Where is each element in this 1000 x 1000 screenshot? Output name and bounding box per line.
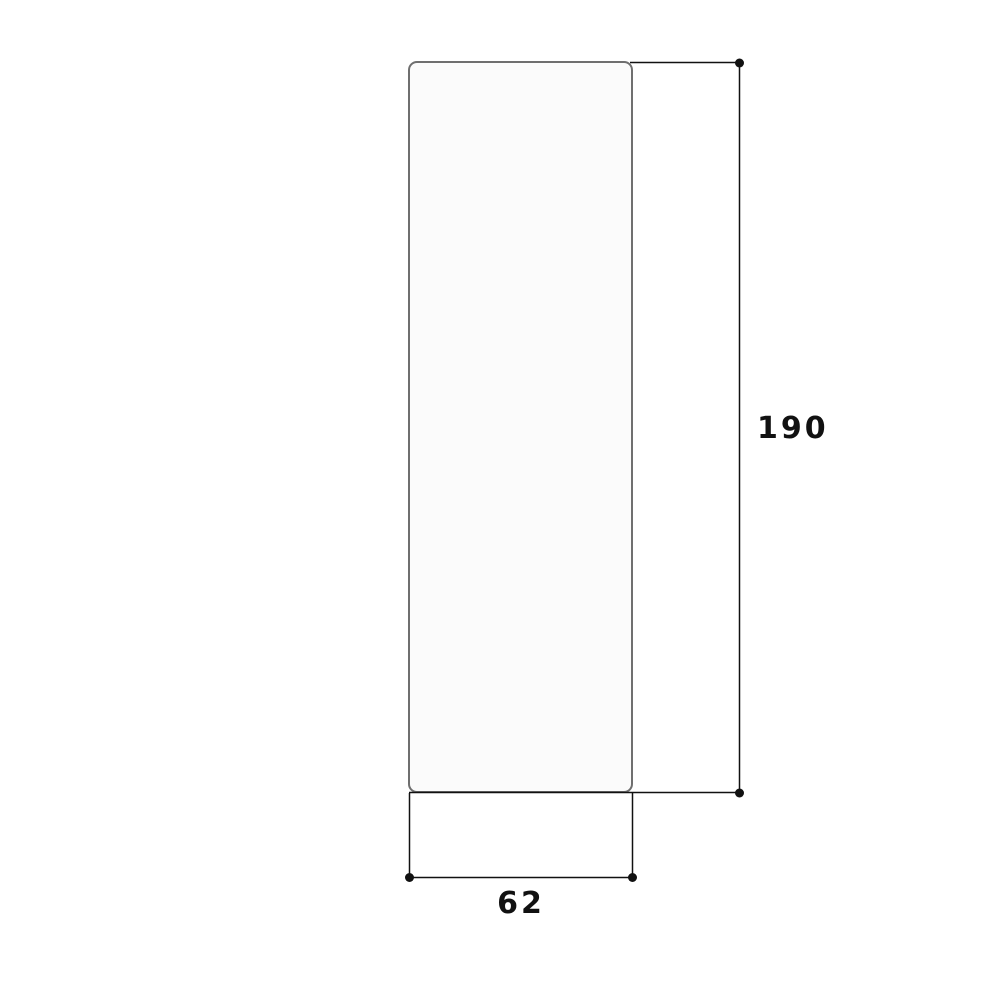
width-dimension-label: 62: [497, 889, 545, 919]
panel-outline: [408, 61, 633, 793]
height-dimension-label: 190: [757, 414, 829, 444]
dimension-diagram: 190 62: [0, 0, 1000, 1000]
width-dimension-right-dot: [628, 873, 637, 882]
height-dimension-bottom-dot: [735, 789, 744, 798]
height-dimension-top-dot: [735, 59, 744, 68]
width-dimension-left-dot: [405, 873, 414, 882]
